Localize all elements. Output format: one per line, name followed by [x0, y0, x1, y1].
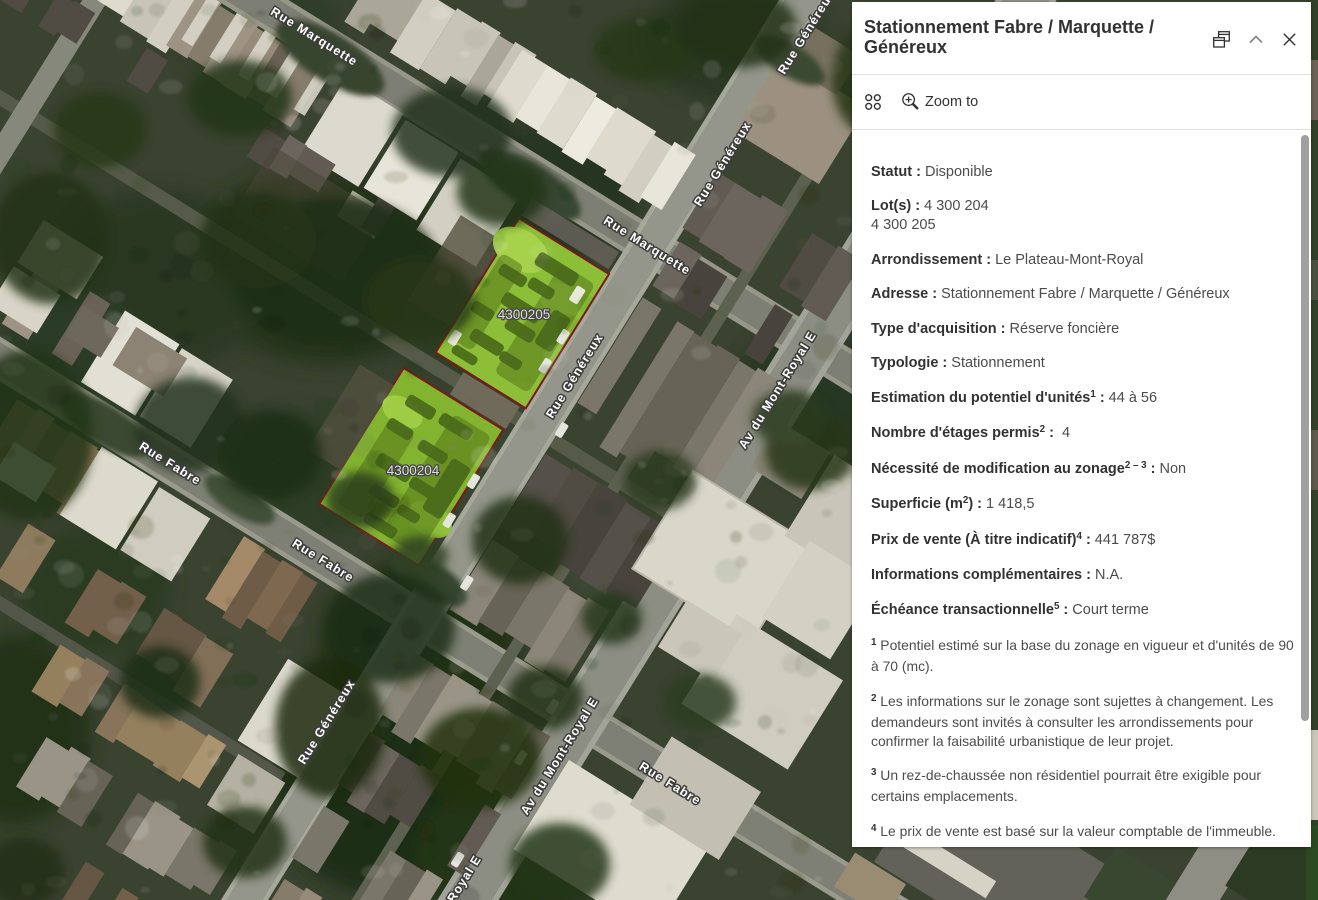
svg-text:4300204: 4300204 — [387, 463, 440, 478]
svg-text:4300205: 4300205 — [498, 307, 551, 322]
